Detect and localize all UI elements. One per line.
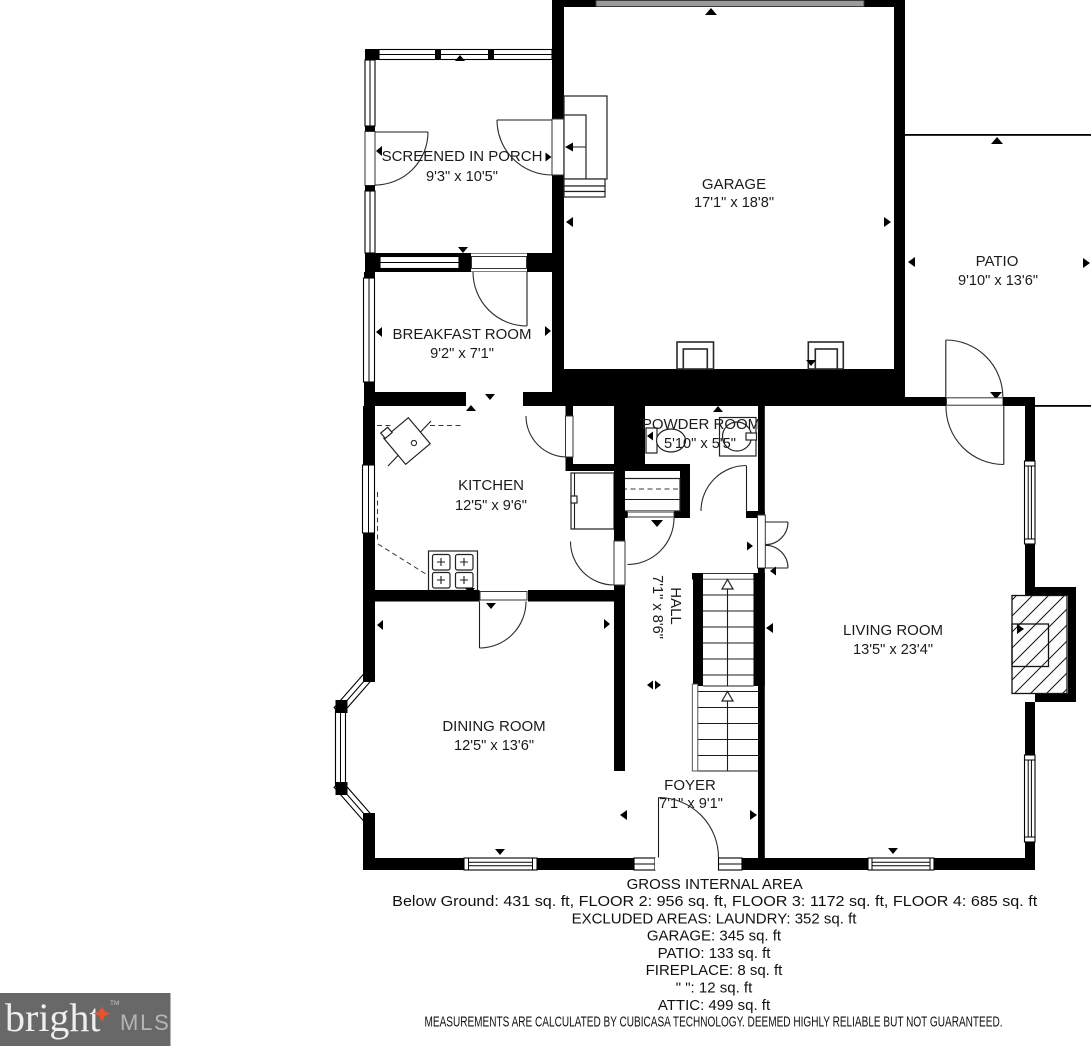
- svg-text:LIVING ROOM: LIVING ROOM: [843, 622, 943, 639]
- svg-text:SCREENED IN PORCH: SCREENED IN PORCH: [382, 148, 543, 165]
- svg-text:EXCLUDED AREAS: LAUNDRY: 352 s: EXCLUDED AREAS: LAUNDRY: 352 sq. ft: [572, 910, 858, 927]
- svg-text:" ": 12 sq. ft: " ": 12 sq. ft: [676, 980, 753, 997]
- svg-text:12'5" x 9'6": 12'5" x 9'6": [455, 498, 527, 514]
- svg-text:MEASUREMENTS ARE CALCULATED BY: MEASUREMENTS ARE CALCULATED BY CUBICASA …: [425, 1014, 1003, 1031]
- svg-text:Below Ground: 431 sq. ft, FLOO: Below Ground: 431 sq. ft, FLOOR 2: 956 s…: [392, 893, 1038, 910]
- svg-text:9'10" x 13'6": 9'10" x 13'6": [958, 273, 1038, 289]
- svg-text:7'1" x 8'6": 7'1" x 8'6": [649, 575, 665, 639]
- svg-text:BREAKFAST ROOM: BREAKFAST ROOM: [393, 326, 532, 343]
- svg-text:PATIO: 133 sq. ft: PATIO: 133 sq. ft: [658, 945, 772, 962]
- svg-text:POWDER ROOM: POWDER ROOM: [642, 416, 760, 433]
- svg-text:GROSS INTERNAL AREA: GROSS INTERNAL AREA: [627, 876, 803, 893]
- svg-text:TM: TM: [110, 1000, 119, 1007]
- svg-text:9'2" x 7'1": 9'2" x 7'1": [430, 346, 494, 362]
- svg-text:KITCHEN: KITCHEN: [458, 477, 524, 494]
- svg-text:DINING ROOM: DINING ROOM: [442, 718, 545, 735]
- svg-text:17'1" x 18'8": 17'1" x 18'8": [694, 195, 774, 211]
- svg-text:FOYER: FOYER: [664, 777, 716, 794]
- svg-text:13'5" x 23'4": 13'5" x 23'4": [853, 642, 933, 658]
- svg-text:HALL: HALL: [667, 587, 684, 625]
- svg-text:bright: bright: [5, 995, 101, 1040]
- svg-text:PATIO: PATIO: [976, 253, 1019, 270]
- svg-text:5'10" x 5'5": 5'10" x 5'5": [664, 436, 736, 452]
- svg-text:FIREPLACE: 8 sq. ft: FIREPLACE: 8 sq. ft: [646, 962, 784, 979]
- svg-text:12'5" x 13'6": 12'5" x 13'6": [454, 738, 534, 754]
- svg-text:MLS: MLS: [120, 1010, 171, 1035]
- svg-text:ATTIC: 499 sq. ft: ATTIC: 499 sq. ft: [658, 997, 771, 1014]
- svg-text:GARAGE: 345 sq. ft: GARAGE: 345 sq. ft: [647, 928, 782, 945]
- svg-text:9'3" x 10'5": 9'3" x 10'5": [426, 169, 498, 185]
- svg-text:GARAGE: GARAGE: [702, 176, 766, 193]
